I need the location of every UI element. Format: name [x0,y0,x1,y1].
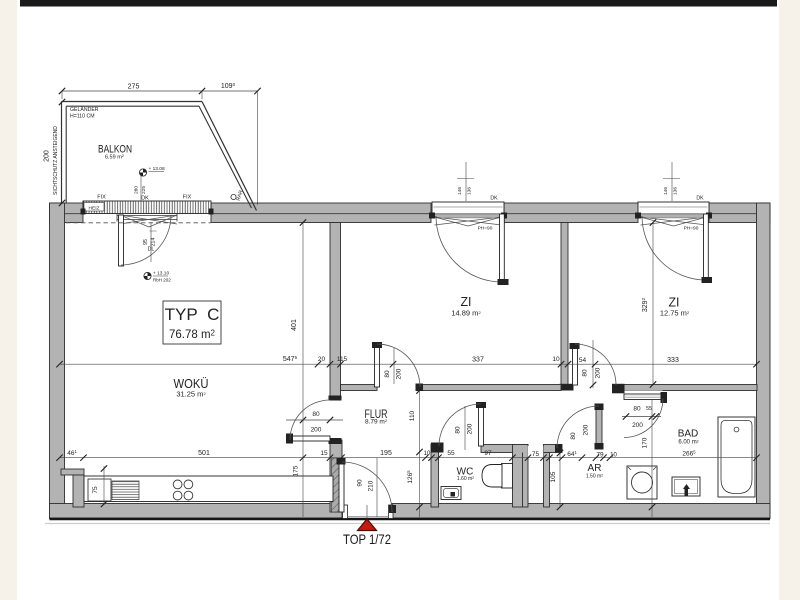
svg-text:200: 200 [467,423,474,434]
svg-text:136: 136 [467,187,473,195]
svg-text:80: 80 [312,411,320,418]
svg-text:ZI: ZI [669,295,680,310]
svg-text:20: 20 [318,356,326,363]
svg-text:AR: AR [588,463,602,474]
svg-text:333: 333 [667,357,679,364]
svg-text:10: 10 [610,453,617,459]
svg-text:200: 200 [583,424,590,435]
svg-text:146: 146 [663,187,669,195]
svg-text:80: 80 [582,369,589,377]
svg-text:195: 195 [380,450,392,457]
svg-text:FIX: FIX [183,195,192,201]
svg-text:PH=90: PH=90 [478,226,493,232]
svg-text:80: 80 [633,406,641,413]
svg-text:6.00 m2: 6.00 m2 [678,439,698,445]
svg-text:1.50 m2: 1.50 m2 [586,473,603,479]
svg-text:401: 401 [291,319,298,331]
svg-text:275: 275 [128,84,140,91]
svg-text:75: 75 [92,486,99,494]
svg-text:75: 75 [532,451,540,458]
svg-text:+ 13.08: + 13.08 [149,166,165,172]
svg-text:200: 200 [632,422,643,429]
svg-text:210: 210 [368,480,375,491]
svg-text:DL: DL [148,247,155,253]
svg-text:95: 95 [143,239,149,245]
svg-text:200: 200 [396,368,403,379]
svg-text:10: 10 [424,451,431,457]
svg-text:97: 97 [484,450,492,457]
svg-text:TYP C: TYP C [165,305,220,324]
svg-text:55: 55 [646,406,652,412]
svg-text:225: 225 [141,186,147,194]
svg-text:501: 501 [198,450,210,457]
svg-text:TOP 1/72: TOP 1/72 [343,531,391,547]
svg-text:H=110 CM: H=110 CM [70,114,95,120]
svg-text:80: 80 [455,426,462,434]
svg-text:80: 80 [384,370,391,378]
svg-text:175: 175 [293,465,300,476]
svg-text:146: 146 [457,187,463,195]
svg-text:79: 79 [596,452,604,459]
svg-text:136: 136 [673,187,679,195]
svg-text:115: 115 [337,356,348,363]
svg-text:12.75 m2: 12.75 m2 [660,309,690,318]
svg-text:337: 337 [472,357,484,364]
svg-text:PH=90: PH=90 [684,226,699,232]
svg-text:10: 10 [552,356,560,363]
svg-text:105: 105 [550,471,557,482]
svg-text:1.60 m2: 1.60 m2 [457,476,474,482]
svg-text:90: 90 [357,479,364,487]
svg-text:170: 170 [642,437,649,448]
svg-text:55: 55 [447,450,455,457]
svg-text:76.78 m2: 76.78 m2 [169,329,216,342]
svg-text:80: 80 [570,432,577,440]
svg-text:280: 280 [134,186,140,194]
svg-text:DK: DK [490,196,498,202]
svg-text:SICHTSCHUTZ ANSTEIGEND: SICHTSCHUTZ ANSTEIGEND [53,126,59,195]
svg-text:200: 200 [595,367,602,378]
svg-text:ZI: ZI [461,294,472,309]
svg-text:110: 110 [409,410,416,421]
svg-text:FIX: FIX [97,195,106,201]
svg-text:DK: DK [696,196,704,202]
svg-text:GELÄNDER: GELÄNDER [70,106,99,113]
svg-text:RbH 202: RbH 202 [153,278,171,283]
svg-text:31.25 m2: 31.25 m2 [176,390,206,399]
svg-text:200: 200 [44,150,51,162]
svg-text:14.89 m2: 14.89 m2 [451,309,481,318]
svg-text:+ 13.10: + 13.10 [153,271,169,277]
svg-text:54: 54 [579,357,587,364]
svg-text:BAD: BAD [678,429,699,440]
svg-text:DK: DK [141,196,149,202]
svg-text:HEIZ: HEIZ [89,206,100,212]
svg-text:15: 15 [320,450,328,457]
svg-text:214: 214 [151,238,157,247]
svg-text:200: 200 [311,427,322,434]
svg-text:8.79 m2: 8.79 m2 [365,418,388,426]
